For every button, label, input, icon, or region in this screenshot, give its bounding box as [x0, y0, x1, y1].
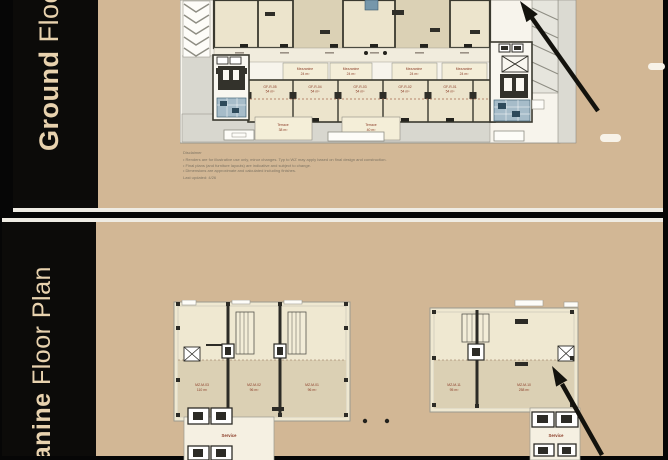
ground-slide-sidebar: Ground Floor Plan — [13, 0, 98, 208]
svg-text:54 m²: 54 m² — [356, 90, 366, 94]
highlight-pill — [600, 134, 621, 142]
mezzanine-plan-drawing: MZ-M-03 110 m² MZ-M-02 96 m² MZ-M-01 96 … — [172, 300, 612, 460]
ground-slide-title: Ground Floor Plan — [34, 0, 65, 151]
mezzanine-title-rest: Floor Plan — [28, 266, 56, 392]
unit-label: MZ-M-11 — [447, 383, 461, 387]
svg-text:258 m²: 258 m² — [519, 388, 530, 392]
svg-text:54 m²: 54 m² — [311, 90, 321, 94]
top-units-block — [214, 0, 490, 48]
svg-text:38 m²: 38 m² — [279, 128, 289, 132]
terrace-label: Terrace — [277, 123, 288, 127]
brochure-page: { "ground_slide": { "title": { "bold": "… — [0, 0, 668, 452]
svg-text:96 m²: 96 m² — [250, 388, 260, 392]
mezzanine-title-bold: Mezzanine — [28, 392, 56, 456]
svg-text:24 m²: 24 m² — [460, 72, 470, 76]
svg-text:95 m²: 95 m² — [450, 388, 460, 392]
stair-x-box — [184, 347, 200, 361]
wet-area-left — [217, 98, 246, 117]
svg-text:96 m²: 96 m² — [308, 388, 318, 392]
plan-dot — [383, 51, 387, 55]
svg-text:54 m²: 54 m² — [446, 90, 456, 94]
retail-unit-label: GF-R-03 — [353, 85, 366, 89]
plan-right-strip — [558, 0, 576, 143]
svg-text:54 m²: 54 m² — [266, 90, 276, 94]
svg-text:54 m²: 54 m² — [401, 90, 411, 94]
retail-unit-label: GF-R-02 — [398, 85, 411, 89]
retail-row: GF-R-05 54 m² GF-R-04 54 m² GF-R-03 54 m… — [245, 80, 496, 122]
stair-block — [216, 66, 247, 90]
corridor — [214, 48, 490, 62]
ground-floor-slide: Ground Floor Plan — [13, 0, 663, 212]
plan-dot — [364, 51, 368, 55]
elevator-block — [500, 74, 528, 98]
svg-text:24 m²: 24 m² — [410, 72, 420, 76]
escalator-hatch-right — [532, 0, 558, 93]
left-core — [213, 55, 249, 120]
retail-unit-label: GF-R-04 — [308, 85, 321, 89]
unit-label: MZ-M-02 — [247, 383, 261, 387]
ramp-chevrons-left — [183, 1, 210, 57]
retail-unit-label: GF-R-05 — [263, 85, 276, 89]
unit-label: MZ-M-01 — [305, 383, 319, 387]
wet-area — [494, 100, 530, 121]
svg-text:40 m²: 40 m² — [367, 128, 377, 132]
mezz-left-block: MZ-M-03 110 m² MZ-M-02 96 m² MZ-M-01 96 … — [174, 300, 350, 421]
svg-text:24 m²: 24 m² — [301, 72, 311, 76]
mezzanine-slide-title: Mezzanine Floor Plan — [28, 266, 57, 456]
svg-text:24 m²: 24 m² — [347, 72, 357, 76]
highlight-pill — [648, 63, 665, 70]
ground-title-rest: Floor Plan — [34, 0, 64, 51]
disclaimer-bullet: • Dimensions are approximate and calcula… — [183, 168, 513, 174]
mezzanine-floor-slide: Mezzanine Floor Plan — [2, 218, 663, 456]
plan-dot — [385, 419, 389, 423]
mezz-box-label: Mezzanine — [456, 67, 473, 71]
service-corridor-right: Service — [530, 408, 580, 460]
mezz-box-label: Mezzanine — [297, 67, 314, 71]
water-feature — [365, 0, 378, 10]
unit-label: MZ-M-03 — [195, 383, 209, 387]
service-label: Service — [549, 433, 565, 438]
mezz-box-label: Mezzanine — [343, 67, 360, 71]
disclaimer-block: Disclaimer • Renders are for illustrativ… — [183, 150, 513, 181]
service-label: Service — [222, 433, 238, 438]
ground-title-bold: Ground — [34, 51, 64, 151]
mezzanine-slide-sidebar: Mezzanine Floor Plan — [2, 222, 96, 456]
disclaimer-heading: Disclaimer — [183, 150, 513, 156]
mezz-box-label: Mezzanine — [406, 67, 423, 71]
stair-x-box — [502, 56, 528, 72]
disclaimer-updated: Last updated: 4/26 — [183, 175, 513, 181]
retail-unit-label: GF-R-01 — [443, 85, 456, 89]
terrace-label: Terrace — [365, 123, 376, 127]
ground-floor-plan-drawing: Mezzanine 24 m² Mezzanine 24 m² Mezzanin… — [180, 0, 580, 146]
plan-dot — [363, 419, 367, 423]
unit-label: MZ-M-10 — [517, 383, 531, 387]
top-tabs — [515, 300, 578, 307]
mezz-right-block: MZ-M-11 95 m² MZ-M-10 258 m² — [430, 300, 578, 412]
svg-text:110 m²: 110 m² — [197, 388, 208, 392]
